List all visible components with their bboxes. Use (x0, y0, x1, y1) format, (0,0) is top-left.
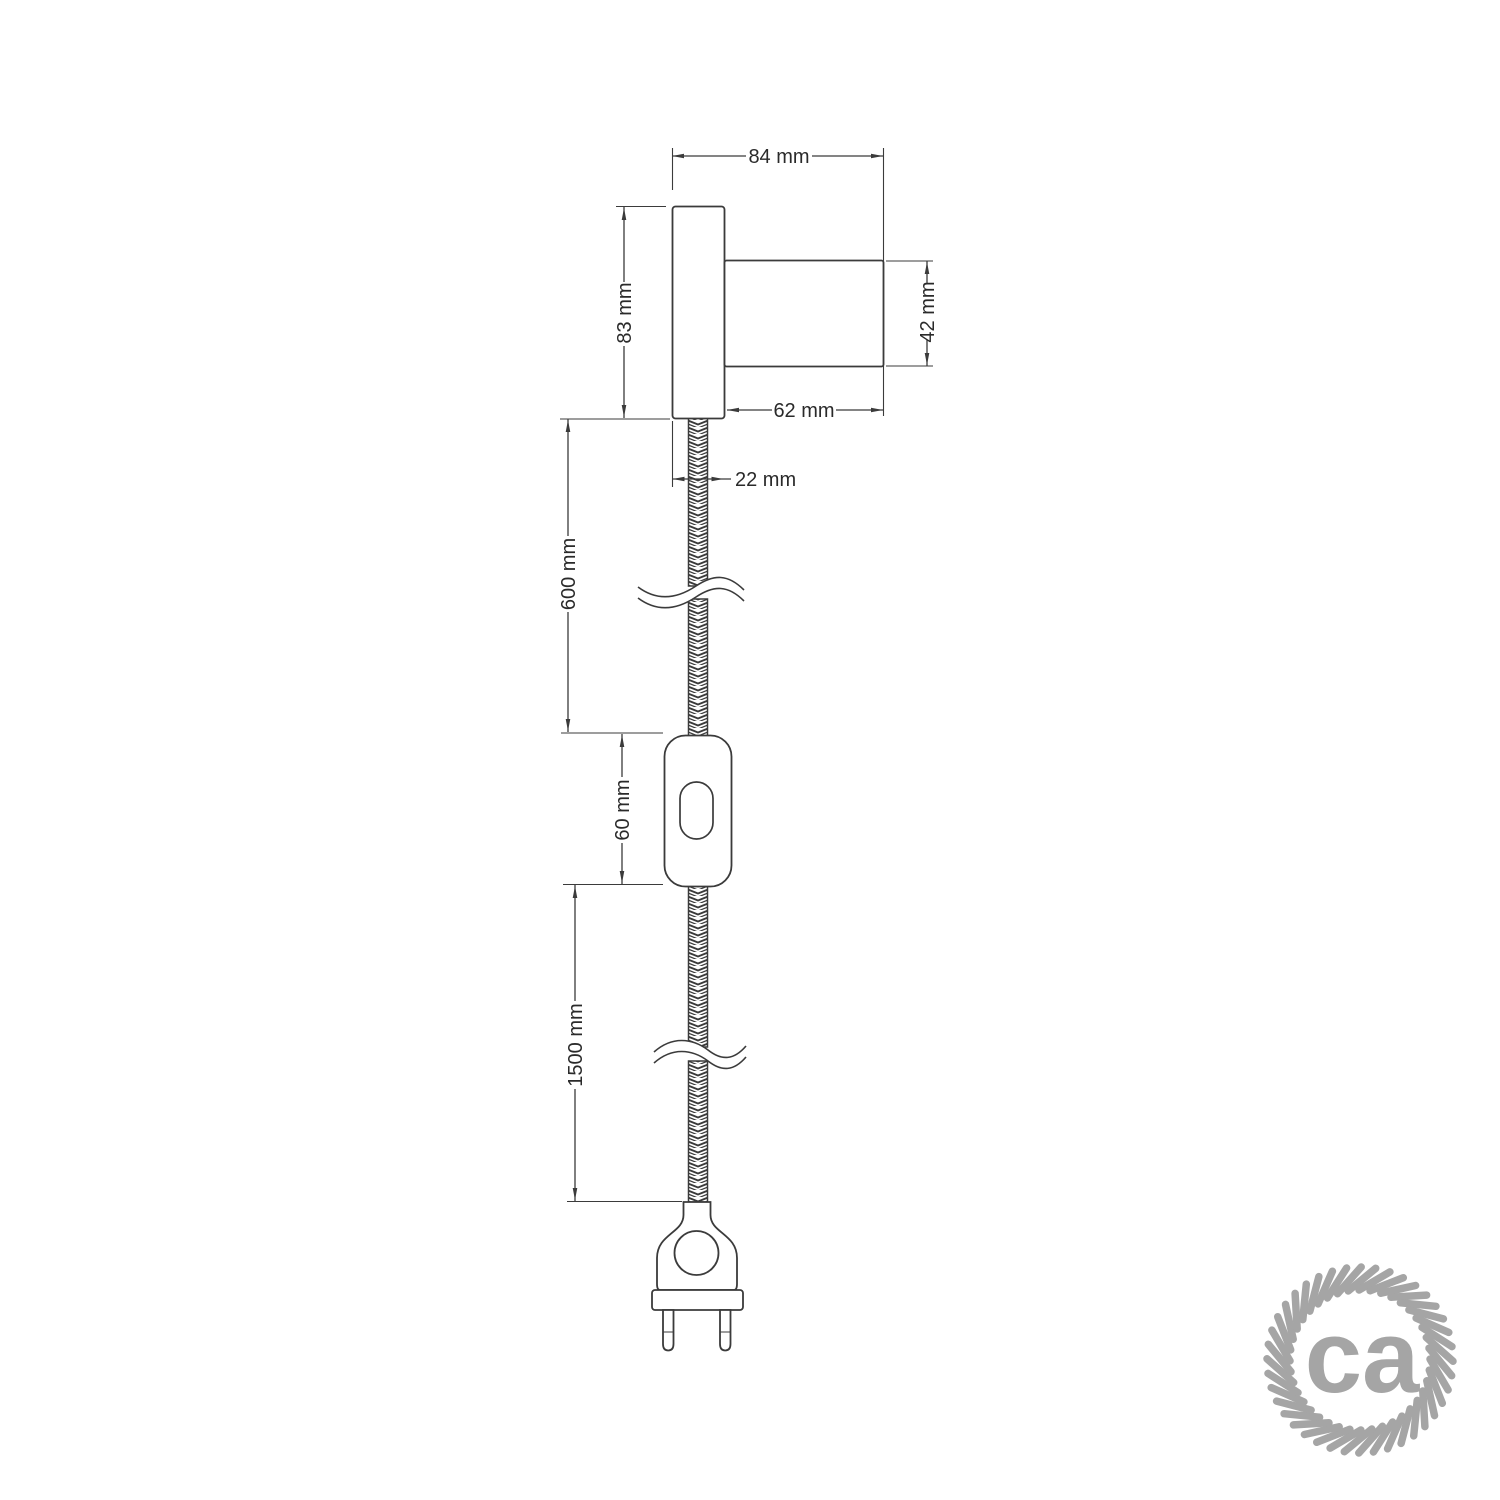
label-cable-upper-length: 600 mm (558, 538, 580, 610)
power-plug (652, 1202, 743, 1351)
cable-lower-segment (689, 1061, 708, 1202)
inline-switch (665, 736, 732, 887)
lamp-socket-tube (725, 261, 884, 367)
label-base-depth: 22 mm (735, 469, 796, 491)
label-switch-length: 60 mm (612, 779, 634, 840)
cable-upper-segment (689, 418, 708, 586)
rope-strand (1391, 1295, 1427, 1297)
rope-strand (1423, 1391, 1425, 1427)
plug-screw-circle (675, 1231, 719, 1275)
rope-strand (1295, 1293, 1297, 1329)
label-overall-depth: 84 mm (748, 146, 809, 168)
wall-lamp (673, 207, 884, 419)
label-socket-length: 62 mm (773, 400, 834, 422)
lamp-base-plate (673, 207, 725, 419)
rope-strand (1284, 1414, 1320, 1418)
cable-upper-segment (689, 599, 708, 738)
plug-flange (652, 1290, 743, 1310)
brand-logo: ca (1267, 1267, 1453, 1453)
rope-strand (1293, 1423, 1329, 1425)
plug-pin-left (663, 1310, 674, 1351)
cable-lower-segment (689, 884, 708, 1047)
logo-text: ca (1305, 1299, 1420, 1414)
label-socket-diameter: 42 mm (917, 281, 939, 342)
switch-rocker (680, 782, 713, 839)
label-cable-lower-length: 1500 mm (565, 1003, 587, 1086)
lamp-dimensional-drawing: 84 mm 83 mm 42 mm 62 mm 22 mm 600 mm 60 … (0, 0, 1500, 1500)
plug-pin-right (720, 1310, 731, 1351)
label-base-diameter: 83 mm (614, 282, 636, 343)
dimensional-drawing-page: 84 mm 83 mm 42 mm 62 mm 22 mm 600 mm 60 … (0, 0, 1500, 1500)
